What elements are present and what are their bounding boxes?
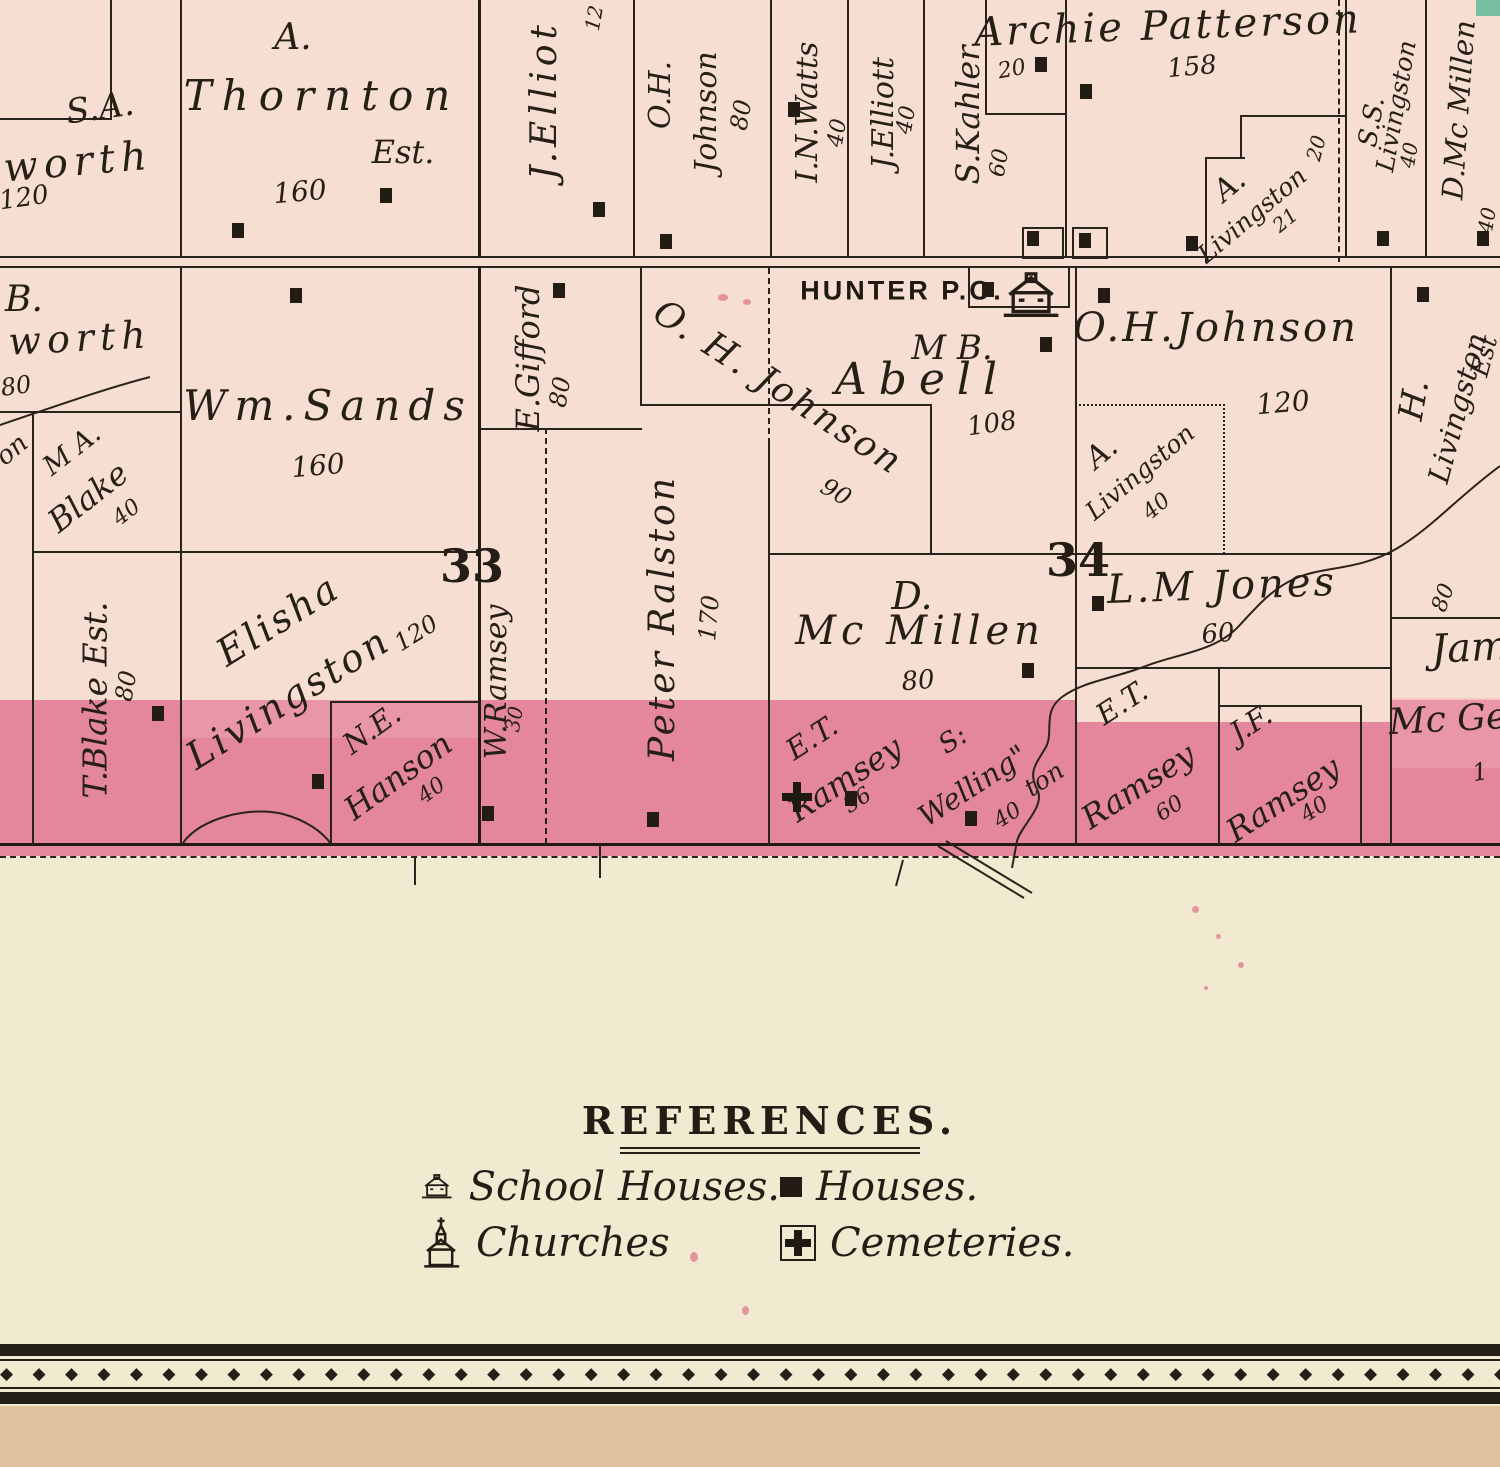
parcel-label: A. <box>274 20 311 56</box>
house-icon <box>780 1177 802 1197</box>
legend-item: Cemeteries. <box>780 1216 1100 1269</box>
parcel-label: 12 <box>582 4 606 33</box>
legend-item-label: School Houses. <box>469 1164 780 1210</box>
border-bar <box>0 1392 1500 1404</box>
parcel-label: Est. <box>372 136 435 168</box>
parcel-label: Thornton <box>184 75 461 117</box>
parcel-label: Mc Ge <box>1388 699 1500 741</box>
decorative-border: ◆ ◆ ◆ ◆ ◆ ◆ ◆ ◆ ◆ ◆ ◆ ◆ ◆ ◆ ◆ ◆ ◆ ◆ ◆ ◆ … <box>0 1344 1500 1404</box>
schoolhouse-icon <box>1000 272 1064 321</box>
house-marker <box>1022 663 1034 678</box>
stain <box>1204 986 1208 990</box>
stain <box>1238 962 1244 968</box>
parcel-label: 60 <box>1200 620 1235 649</box>
parcel-label: J.Elliot <box>527 20 563 180</box>
house-marker <box>1098 288 1110 303</box>
cemetery-marker <box>782 782 812 812</box>
house-marker <box>845 791 857 806</box>
schoolhouse-marker <box>1000 272 1064 325</box>
parcel-label: 30 <box>502 705 526 734</box>
parcel-label: 80 <box>727 98 756 132</box>
references-legend: REFERENCES. School Houses.Houses.Churche… <box>420 1098 1120 1269</box>
schoolhouse-icon <box>420 1174 455 1200</box>
house-marker <box>593 202 605 217</box>
lot-outline <box>1022 227 1064 259</box>
parcel-label: 60 <box>987 147 1014 178</box>
house-marker <box>1417 287 1429 302</box>
parcel-label: Johnson <box>692 51 722 173</box>
stain <box>1216 934 1221 939</box>
parcel-label: 120 <box>0 182 50 215</box>
border-rule <box>0 1359 1500 1361</box>
house-marker <box>1040 337 1052 352</box>
parcel-label: W.Ramsey <box>482 605 512 760</box>
house-marker <box>152 706 164 721</box>
stain <box>743 299 751 305</box>
house-marker <box>380 188 392 203</box>
parcel-label: 80 <box>546 375 575 409</box>
parcel-label: S.Kahler <box>952 45 984 184</box>
parcel-label: 40 <box>825 117 852 148</box>
house-marker <box>290 288 302 303</box>
house-marker <box>1186 236 1198 251</box>
house-marker <box>965 811 977 826</box>
house-marker <box>1377 231 1389 246</box>
railroad-line <box>938 846 1024 898</box>
legend-items: School Houses.Houses.ChurchesCemeteries. <box>420 1164 1120 1269</box>
house-marker <box>232 223 244 238</box>
parcel-label: 40 <box>1397 141 1421 170</box>
parcel-label: 158 <box>1166 52 1218 82</box>
parcel-label: Abell <box>835 358 1009 402</box>
legend-item-label: Houses. <box>816 1164 978 1210</box>
parcel-label: Wm.Sands <box>183 385 473 427</box>
house-marker <box>1080 84 1092 99</box>
parcel-label: O.H. <box>646 61 676 129</box>
plat-map: S.A.worth120A.ThorntonEst.160J.Elliot12O… <box>0 0 1500 910</box>
house-marker <box>788 102 800 117</box>
section-number: 33 <box>440 543 504 589</box>
border-bar <box>0 1344 1500 1356</box>
creek-lines <box>0 0 1500 910</box>
parcel-label: 40 <box>894 104 921 135</box>
parcel-label: 108 <box>966 408 1019 441</box>
house-marker <box>1477 231 1489 246</box>
section-number: 34 <box>1046 537 1110 583</box>
railroad-line <box>946 841 1032 893</box>
stain <box>1192 906 1199 913</box>
parcel-label: 80 <box>0 372 33 400</box>
parcel-label: L.M Jones <box>1106 562 1337 610</box>
parcel-label: worth <box>7 315 152 360</box>
parcel-label: 120 <box>1255 387 1311 420</box>
parcel-label: 80 <box>112 669 141 703</box>
house-marker <box>482 806 494 821</box>
parcel-label: Peter Ralston <box>645 475 681 761</box>
house-marker <box>312 774 324 789</box>
parcel-label: 160 <box>272 176 328 209</box>
border-diamond-ornament: ◆ ◆ ◆ ◆ ◆ ◆ ◆ ◆ ◆ ◆ ◆ ◆ ◆ ◆ ◆ ◆ ◆ ◆ ◆ ◆ … <box>0 1364 1500 1384</box>
border-rule <box>0 1387 1500 1389</box>
house-marker <box>1092 596 1104 611</box>
atlas-page: S.A.worth120A.ThorntonEst.160J.Elliot12O… <box>0 0 1500 1467</box>
legend-item: Churches <box>420 1216 780 1269</box>
lot-outline <box>1072 227 1108 259</box>
house-marker <box>647 812 659 827</box>
parcel-label: O.H.Johnson <box>1073 308 1359 348</box>
legend-item: Houses. <box>780 1164 1100 1210</box>
parcel-label: B. <box>5 282 43 318</box>
parcel-label: 40 <box>1475 206 1499 235</box>
parcel-label: Jam <box>1430 626 1500 670</box>
adjacent-plate-edge <box>1476 0 1500 16</box>
parcel-label: S.A. <box>64 86 136 129</box>
stain <box>742 1306 749 1315</box>
house-marker <box>982 282 994 297</box>
parcel-label: 20 <box>1303 133 1329 163</box>
parcel-label: H. <box>1394 377 1435 423</box>
legend-title: REFERENCES. <box>555 1098 985 1143</box>
parcel-label: 80 <box>900 667 935 696</box>
house-marker <box>553 283 565 298</box>
stain <box>718 294 728 301</box>
church-icon <box>420 1216 462 1269</box>
page-margin <box>0 1406 1500 1467</box>
parcel-label: E.Gifford <box>512 284 544 431</box>
legend-item-label: Cemeteries. <box>830 1220 1074 1266</box>
legend-item-label: Churches <box>476 1220 670 1266</box>
legend-item: School Houses. <box>420 1164 780 1210</box>
cemetery-icon <box>780 1225 816 1261</box>
parcel-label: Mc Millen <box>795 611 1045 651</box>
house-marker <box>1035 57 1047 72</box>
parcel-label: 170 <box>695 594 723 642</box>
parcel-label: 20 <box>996 57 1027 84</box>
parcel-label: T.Blake Est. <box>79 602 112 799</box>
parcel-label: 160 <box>290 450 346 483</box>
post-office-label: HUNTER P.O. <box>800 278 1004 305</box>
house-marker <box>660 234 672 249</box>
legend-title-underline <box>620 1147 920 1154</box>
